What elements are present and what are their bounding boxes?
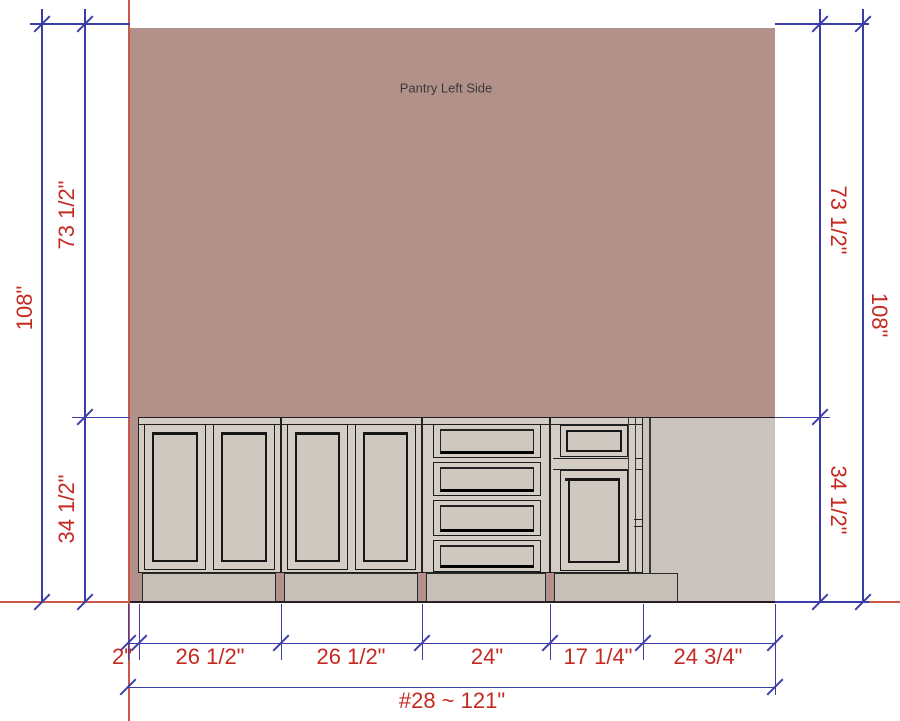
dimension-line (862, 9, 864, 603)
toe-kick (142, 573, 276, 602)
filler-strip-line (635, 418, 636, 572)
drawer-front (433, 540, 541, 572)
dimension-connector (775, 417, 830, 419)
dimension-connector (30, 23, 130, 25)
dim-label-right-overall: 108" (868, 293, 890, 338)
dimension-line (84, 9, 86, 603)
door-panel (568, 478, 620, 563)
dim-label-right-lower: 34 1/2" (827, 466, 849, 535)
extension-line (422, 604, 424, 660)
filler-mark (635, 469, 643, 470)
filler-mark (634, 519, 643, 520)
door-panel (152, 432, 198, 562)
extension-line (643, 604, 645, 660)
dimension-connector (72, 417, 130, 419)
toe-kick (554, 573, 678, 602)
dim-label-right-upper: 73 1/2" (827, 186, 849, 255)
door-panel (295, 432, 340, 562)
door-panel (363, 432, 408, 562)
extension-line (139, 604, 141, 660)
floor-construction-line-left (0, 601, 129, 603)
base-cabinet-2 (281, 417, 422, 573)
dim-label-bottom-overall: #28 ~ 121" (399, 690, 505, 712)
drawer-front (433, 462, 541, 496)
floor-construction-line-right (869, 601, 900, 603)
extension-line (550, 604, 552, 660)
dim-label-left-lower: 34 1/2" (56, 475, 78, 544)
dim-label-segment: 24" (471, 646, 503, 668)
cabinet-door (560, 470, 628, 571)
base-cabinet-4 (550, 417, 643, 573)
dim-label-segment: 24 3/4" (674, 646, 743, 668)
cabinet-door (144, 424, 206, 570)
dimension-line (41, 9, 43, 603)
drawer-panel (440, 545, 534, 568)
elevation-drawing-canvas: Pantry Left Side (0, 0, 900, 721)
door-panel (221, 432, 267, 562)
dim-label-segment: 26 1/2" (317, 646, 386, 668)
drawer-panel (440, 505, 534, 532)
toe-kick (426, 573, 546, 602)
base-cabinet-1 (138, 417, 281, 573)
cabinet-door (287, 424, 348, 570)
right-stile-line (628, 418, 629, 572)
filler-mark (634, 526, 643, 527)
dimension-line (819, 9, 821, 603)
dim-label-left-upper: 73 1/2" (56, 181, 78, 250)
door-knob (565, 478, 568, 481)
extension-line (281, 604, 283, 660)
dim-label-segment: 2" (112, 646, 132, 668)
cabinet-door (213, 424, 275, 570)
drawer-panel (440, 467, 534, 492)
cabinet-door (355, 424, 416, 570)
drawer-front (560, 425, 628, 457)
dim-label-left-overall: 108" (14, 286, 36, 331)
dim-label-segment: 26 1/2" (176, 646, 245, 668)
wall-label: Pantry Left Side (400, 81, 493, 96)
extension-line (775, 604, 777, 695)
toe-kick (284, 573, 418, 602)
dim-label-segment: 17 1/4" (564, 646, 633, 668)
drawer-front (433, 500, 541, 536)
base-cabinet-3 (422, 417, 550, 573)
drawer-panel (440, 429, 534, 454)
mid-rail-line (553, 458, 628, 459)
drawer-panel (566, 430, 622, 452)
filler-mark (635, 458, 643, 459)
end-panel-edge-line (649, 418, 651, 573)
drawer-front (433, 424, 541, 458)
